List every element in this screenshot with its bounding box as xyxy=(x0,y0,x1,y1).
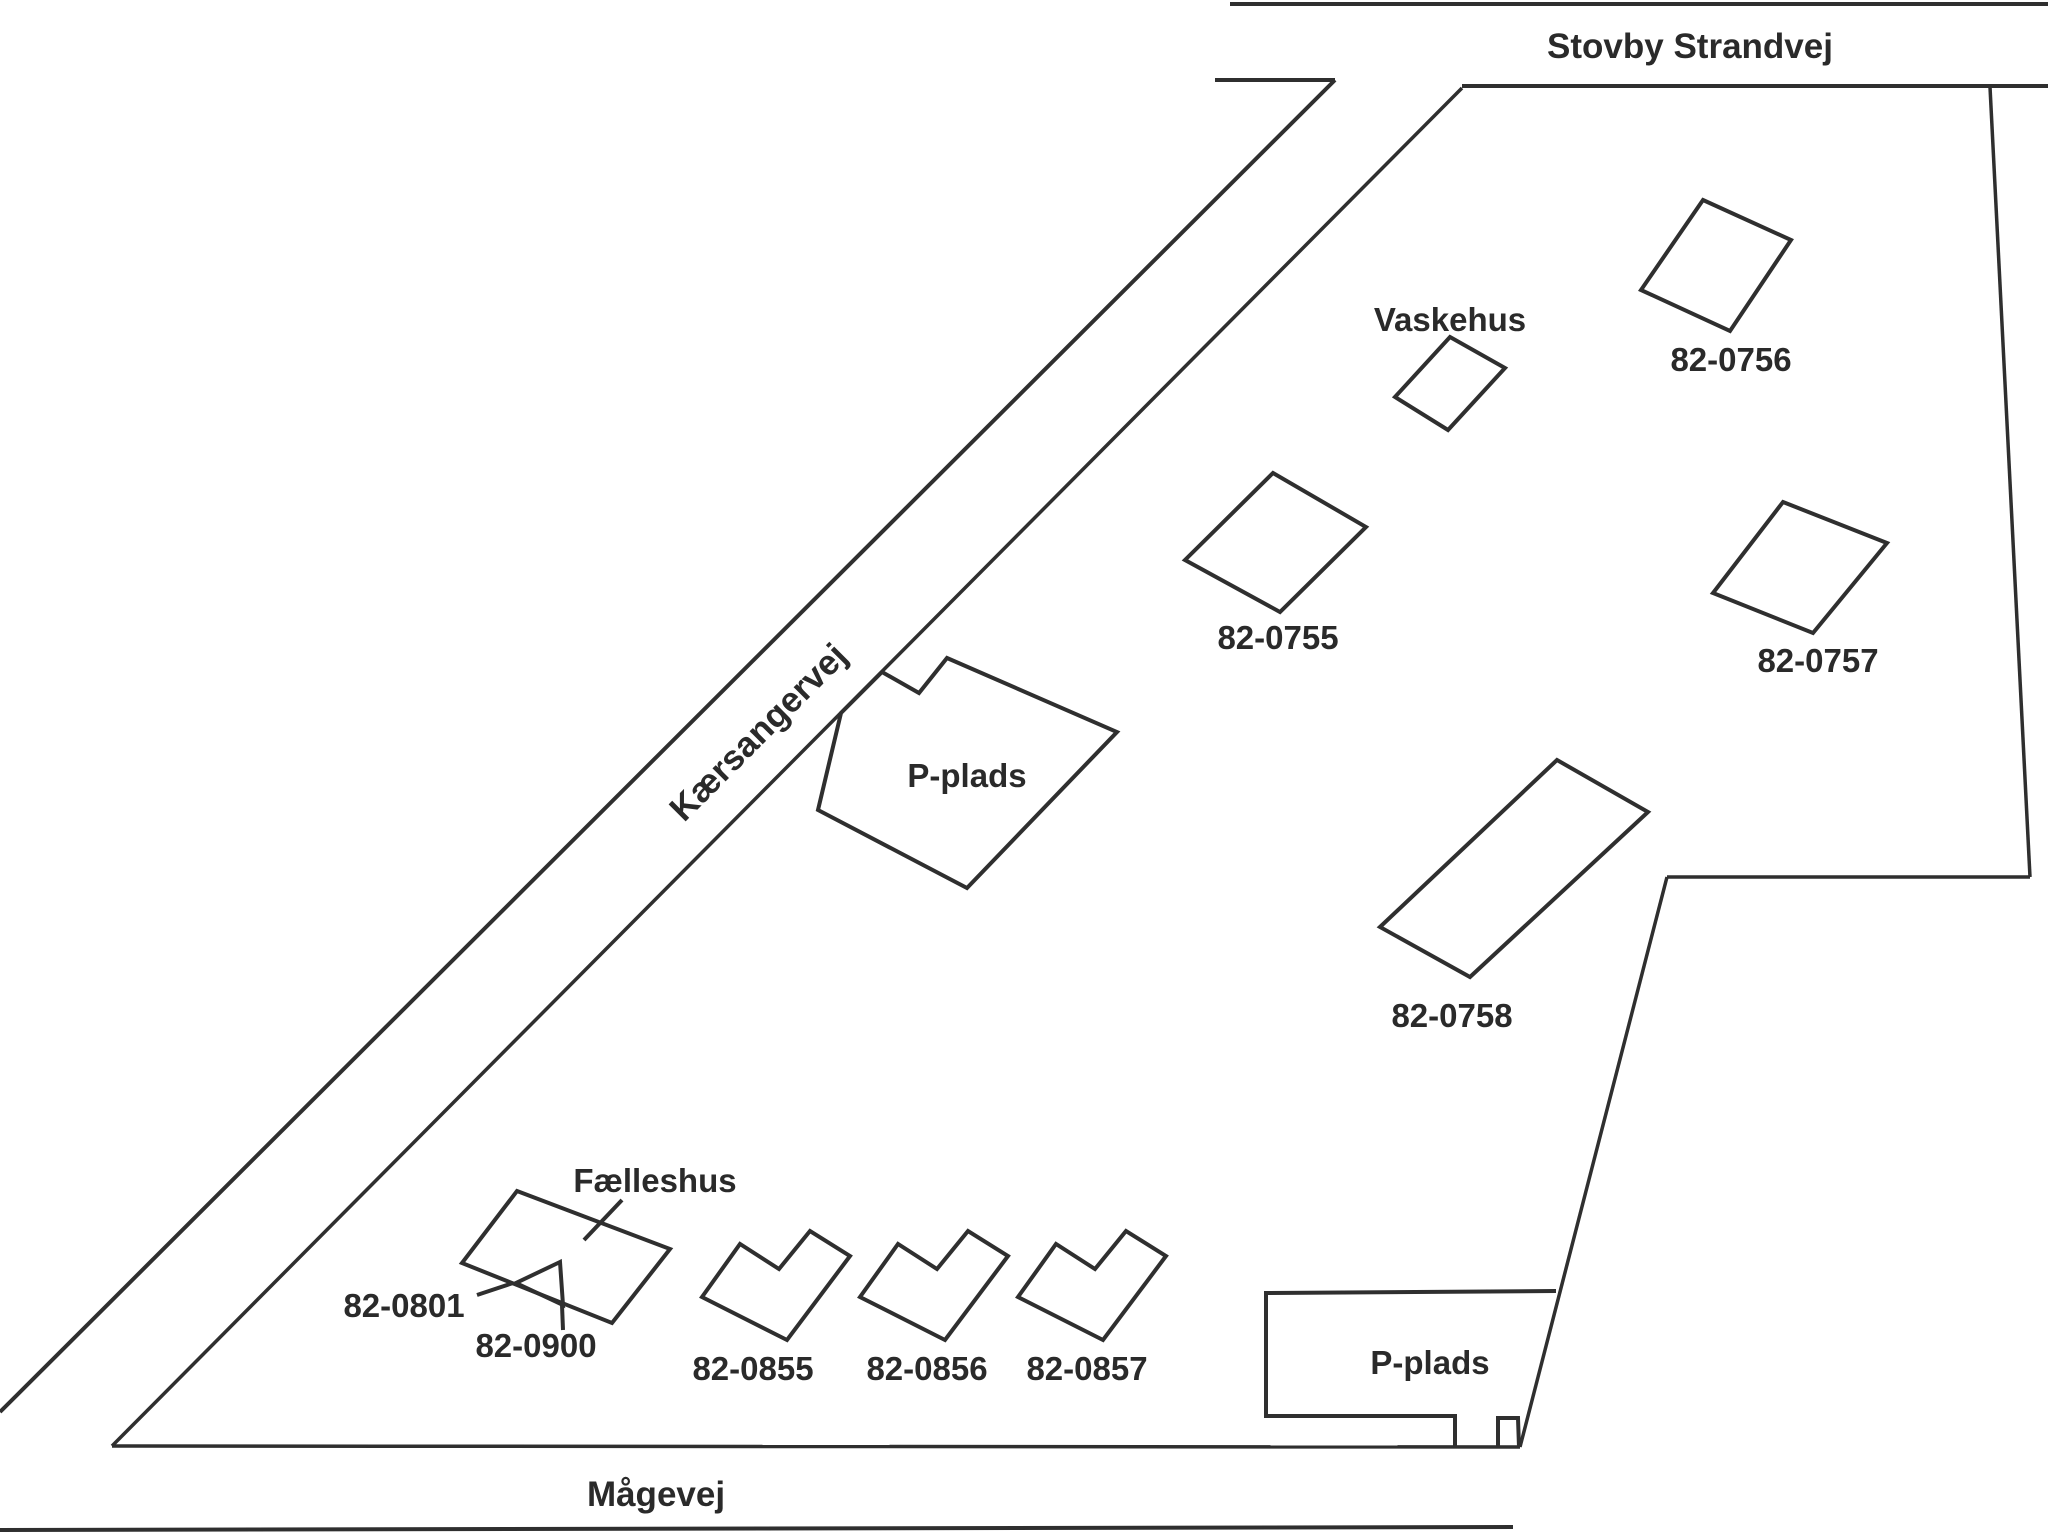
parcel-east-boundary xyxy=(1990,87,2030,877)
building-82-0757 xyxy=(1713,502,1887,633)
road-label-maagevej: Mågevej xyxy=(587,1475,725,1514)
building-82-0755 xyxy=(1185,473,1366,612)
labels: Stovby Strandvej Kærsangervej Mågevej Va… xyxy=(343,27,1878,1514)
label-p-plads-north: P-plads xyxy=(907,757,1026,794)
building-82-0857 xyxy=(1018,1231,1166,1340)
building-82-0855 xyxy=(702,1231,850,1340)
maagevej-south-edge xyxy=(0,1527,1513,1530)
parking-area-south-gate-stub xyxy=(1498,1418,1519,1447)
site-plan-map: Stovby Strandvej Kærsangervej Mågevej Va… xyxy=(0,0,2048,1536)
building-82-0758 xyxy=(1380,760,1648,977)
label-82-0855: 82-0855 xyxy=(692,1350,813,1387)
road-label-kaersangervej: Kærsangervej xyxy=(662,636,855,829)
buildings xyxy=(462,200,1887,1447)
kaersangervej-west-edge xyxy=(0,80,1335,1412)
label-p-plads-south: P-plads xyxy=(1370,1344,1489,1381)
label-82-0755: 82-0755 xyxy=(1217,619,1338,656)
label-82-0801: 82-0801 xyxy=(343,1287,464,1324)
label-82-0900: 82-0900 xyxy=(475,1327,596,1364)
building-vaskehus xyxy=(1395,337,1505,430)
building-faelleshus-82-0801 xyxy=(462,1191,670,1323)
road-label-stovby-strandvej: Stovby Strandvej xyxy=(1547,27,1833,66)
label-82-0758: 82-0758 xyxy=(1391,997,1512,1034)
label-faelleshus: Fælleshus xyxy=(573,1162,736,1199)
label-82-0856: 82-0856 xyxy=(866,1350,987,1387)
building-82-0856 xyxy=(860,1231,1008,1340)
parcel-southeast-diagonal-boundary xyxy=(1520,877,1667,1447)
label-82-0757: 82-0757 xyxy=(1757,642,1878,679)
label-82-0756: 82-0756 xyxy=(1670,341,1791,378)
parcel-west-boundary xyxy=(112,88,1462,1446)
label-vaskehus: Vaskehus xyxy=(1374,301,1526,338)
parcel-82-0801-pointer-line xyxy=(477,1283,513,1295)
building-82-0756 xyxy=(1641,200,1791,331)
label-82-0857: 82-0857 xyxy=(1026,1350,1147,1387)
parcel-south-boundary xyxy=(112,1446,1520,1447)
